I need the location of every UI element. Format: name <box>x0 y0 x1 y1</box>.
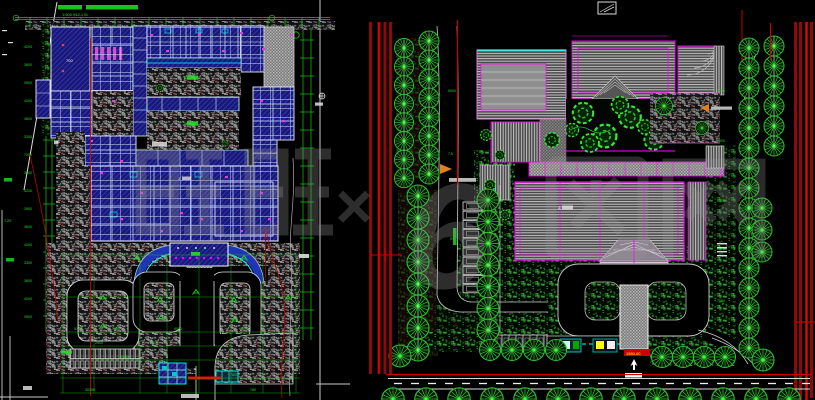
svg-text:3600: 3600 <box>24 279 32 283</box>
svg-text:7.20: 7.20 <box>4 219 11 223</box>
svg-text:1560.00: 1560.00 <box>626 351 641 356</box>
svg-text:3300: 3300 <box>24 135 32 139</box>
svg-text:1:500 942.176: 1:500 942.176 <box>62 12 88 17</box>
svg-text:9000: 9000 <box>717 139 725 143</box>
svg-text:4200: 4200 <box>24 297 32 301</box>
svg-text:3800: 3800 <box>150 341 158 345</box>
svg-text:30350: 30350 <box>85 388 95 392</box>
svg-text:3600: 3600 <box>24 117 32 121</box>
svg-text:4: 4 <box>558 206 561 212</box>
svg-text:4200: 4200 <box>24 189 32 193</box>
svg-text:6000: 6000 <box>717 89 725 93</box>
svg-text:700: 700 <box>66 58 73 63</box>
svg-text:3900: 3900 <box>24 207 32 211</box>
svg-text:4200: 4200 <box>24 45 32 49</box>
svg-text:3300: 3300 <box>24 261 32 265</box>
svg-text:6: 6 <box>405 152 490 320</box>
svg-text:2: 2 <box>183 122 186 128</box>
svg-text:21500: 21500 <box>120 355 130 359</box>
svg-text:4200: 4200 <box>24 243 32 247</box>
svg-text:780: 780 <box>250 388 256 392</box>
svg-text:×: × <box>335 170 372 242</box>
svg-text:7200: 7200 <box>24 153 32 157</box>
svg-text:9000: 9000 <box>448 89 456 93</box>
svg-text:3900: 3900 <box>24 81 32 85</box>
svg-text:2900: 2900 <box>95 341 103 345</box>
svg-text:4200: 4200 <box>24 99 32 103</box>
svg-text:7800: 7800 <box>112 327 120 331</box>
svg-text:7800: 7800 <box>230 373 238 377</box>
svg-text:1: 1 <box>183 76 186 82</box>
svg-text:9000: 9000 <box>174 327 182 331</box>
svg-text:3900: 3900 <box>24 315 32 319</box>
svg-text:7500: 7500 <box>240 327 248 331</box>
svg-text:3600: 3600 <box>24 171 32 175</box>
svg-text:7500: 7500 <box>717 299 725 303</box>
svg-text:3600: 3600 <box>24 225 32 229</box>
svg-text:3600: 3600 <box>24 63 32 67</box>
svg-text:5700: 5700 <box>74 327 82 331</box>
